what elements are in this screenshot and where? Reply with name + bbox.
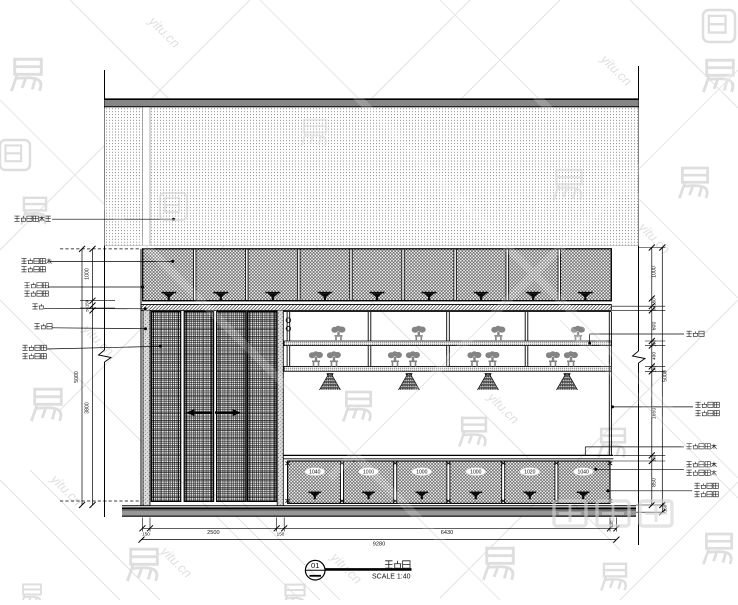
svg-text:yitu.cn: yitu.cn	[157, 543, 195, 581]
svg-text:yitu.cn: yitu.cn	[327, 549, 365, 587]
svg-text:01: 01	[311, 561, 319, 570]
svg-text:yitu.cn: yitu.cn	[79, 321, 117, 359]
svg-text:3800: 3800	[84, 402, 90, 414]
svg-text:1000: 1000	[84, 268, 90, 280]
svg-text:100: 100	[652, 454, 657, 462]
svg-text:SCALE 1:40: SCALE 1:40	[372, 574, 411, 581]
svg-text:150: 150	[277, 532, 285, 537]
svg-text:1000: 1000	[652, 266, 658, 278]
svg-text:yitu.cn: yitu.cn	[484, 389, 522, 427]
svg-text:1000: 1000	[470, 470, 481, 476]
svg-text:600: 600	[652, 322, 658, 331]
svg-text:yitu.cn: yitu.cn	[145, 13, 183, 51]
svg-text:150: 150	[142, 532, 150, 537]
svg-text:1040: 1040	[578, 470, 589, 476]
svg-text:100: 100	[652, 365, 657, 373]
svg-text:yitu.cn: yitu.cn	[47, 471, 85, 509]
svg-text:2500: 2500	[207, 530, 219, 536]
svg-text:50: 50	[84, 307, 89, 312]
svg-text:1020: 1020	[524, 470, 535, 476]
svg-text:150: 150	[663, 504, 668, 512]
svg-text:9280: 9280	[373, 541, 385, 547]
svg-text:5000: 5000	[74, 371, 80, 383]
svg-text:400: 400	[652, 352, 658, 360]
svg-text:150: 150	[84, 299, 89, 307]
svg-text:1040: 1040	[309, 470, 320, 476]
svg-text:80: 80	[652, 306, 657, 311]
svg-text:150: 150	[652, 298, 657, 306]
svg-text:100: 100	[652, 339, 657, 347]
svg-text:1000: 1000	[416, 470, 427, 476]
svg-text:yitu.cn: yitu.cn	[597, 51, 635, 89]
svg-text:5000: 5000	[663, 370, 669, 382]
svg-text:6430: 6430	[441, 530, 453, 536]
svg-text:850: 850	[652, 478, 658, 487]
